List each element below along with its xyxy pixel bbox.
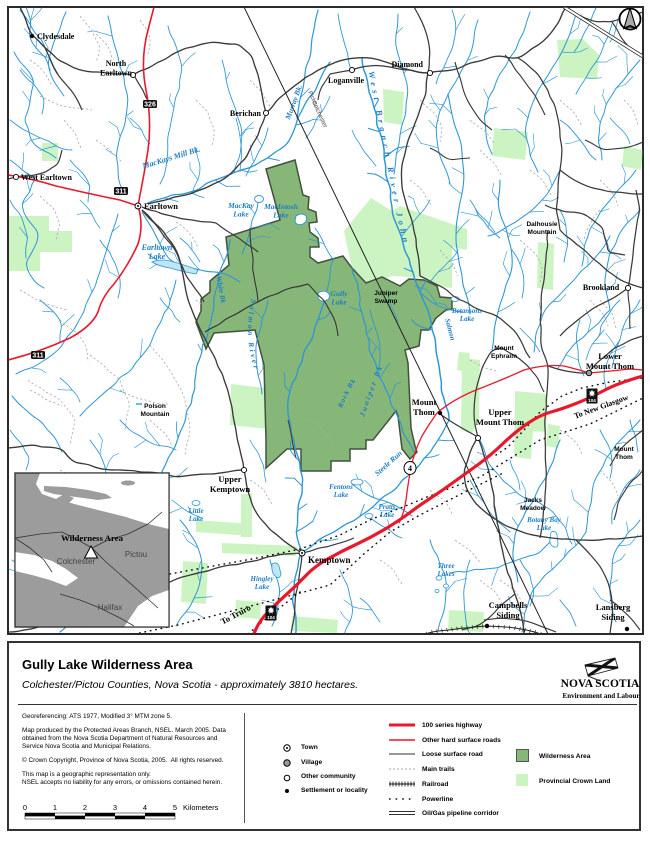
svg-text:311: 311 bbox=[32, 353, 43, 360]
svg-text:Lake: Lake bbox=[459, 315, 474, 323]
svg-text:Lower: Lower bbox=[598, 351, 622, 361]
svg-text:Mount Thom: Mount Thom bbox=[586, 361, 634, 371]
svg-text:326: 326 bbox=[144, 102, 156, 109]
svg-text:Earltown: Earltown bbox=[141, 243, 173, 252]
svg-text:Environment and Labour: Environment and Labour bbox=[563, 692, 640, 700]
svg-text:3: 3 bbox=[113, 803, 117, 812]
svg-text:Kemptown: Kemptown bbox=[308, 555, 351, 565]
svg-text:Lake: Lake bbox=[536, 524, 551, 532]
svg-text:Lansberg: Lansberg bbox=[596, 602, 631, 612]
svg-text:Kemptown: Kemptown bbox=[210, 484, 250, 494]
svg-text:Loganville: Loganville bbox=[328, 76, 364, 85]
svg-text:Mount: Mount bbox=[494, 345, 514, 352]
svg-text:Swamp: Swamp bbox=[375, 298, 398, 305]
svg-text:West Earltown: West Earltown bbox=[21, 173, 72, 182]
svg-text:Thom: Thom bbox=[413, 407, 435, 417]
svg-text:5: 5 bbox=[173, 803, 177, 812]
svg-text:North: North bbox=[106, 59, 127, 68]
svg-text:Pictou: Pictou bbox=[125, 550, 147, 559]
svg-text:Mountain: Mountain bbox=[141, 411, 170, 418]
svg-text:Lakes: Lakes bbox=[436, 570, 454, 578]
svg-text:Ephraim: Ephraim bbox=[491, 353, 517, 360]
svg-text:Earltown: Earltown bbox=[144, 201, 178, 211]
svg-text:1: 1 bbox=[53, 803, 57, 812]
svg-text:Upper: Upper bbox=[218, 474, 241, 484]
svg-text:4: 4 bbox=[408, 464, 412, 473]
svg-text:Colchester: Colchester bbox=[57, 557, 96, 566]
svg-text:Mount: Mount bbox=[412, 397, 437, 407]
svg-text:Pratts: Pratts bbox=[378, 503, 395, 511]
svg-text:Three: Three bbox=[437, 562, 454, 570]
svg-text:Little: Little bbox=[187, 507, 203, 515]
svg-text:Campbells: Campbells bbox=[489, 600, 528, 610]
svg-text:Lake: Lake bbox=[272, 211, 289, 220]
svg-text:Botany Bay: Botany Bay bbox=[526, 516, 562, 524]
svg-text:Upper: Upper bbox=[488, 407, 511, 417]
svg-text:Lake: Lake bbox=[188, 515, 203, 523]
svg-text:311: 311 bbox=[115, 189, 126, 196]
svg-text:Lake: Lake bbox=[254, 583, 269, 591]
svg-text:Berichan: Berichan bbox=[230, 109, 262, 118]
svg-text:Mountain: Mountain bbox=[528, 229, 557, 236]
svg-text:4: 4 bbox=[143, 803, 147, 812]
svg-text:Juniper: Juniper bbox=[374, 290, 398, 297]
svg-text:Siding: Siding bbox=[601, 612, 625, 622]
svg-text:104: 104 bbox=[588, 398, 596, 403]
svg-text:Hingley: Hingley bbox=[250, 575, 275, 583]
svg-text:Mount Thom: Mount Thom bbox=[476, 417, 524, 427]
svg-text:Mount: Mount bbox=[614, 446, 634, 453]
svg-text:Brookland: Brookland bbox=[583, 283, 620, 292]
svg-text:Polson: Polson bbox=[144, 403, 166, 410]
svg-text:Lake: Lake bbox=[379, 511, 394, 519]
svg-text:Jacks: Jacks bbox=[524, 497, 542, 504]
svg-text:Kilometers: Kilometers bbox=[183, 803, 219, 812]
svg-text:Thom: Thom bbox=[615, 454, 633, 461]
svg-text:Halifax: Halifax bbox=[98, 603, 122, 612]
svg-text:Lake: Lake bbox=[333, 491, 348, 499]
svg-text:Betansons: Betansons bbox=[451, 307, 482, 315]
svg-text:Lake: Lake bbox=[330, 298, 347, 307]
svg-text:Clydesdale: Clydesdale bbox=[37, 32, 75, 41]
svg-text:Siding: Siding bbox=[496, 610, 520, 620]
svg-text:104: 104 bbox=[267, 615, 275, 620]
svg-text:Dalhousie: Dalhousie bbox=[526, 221, 557, 228]
svg-text:Diamond: Diamond bbox=[391, 60, 423, 69]
svg-text:NOVA SCOTIA: NOVA SCOTIA bbox=[561, 678, 640, 690]
svg-text:Meadow: Meadow bbox=[520, 505, 547, 512]
svg-text:0: 0 bbox=[23, 803, 27, 812]
svg-text:Earltown: Earltown bbox=[100, 69, 133, 78]
svg-text:2: 2 bbox=[83, 803, 87, 812]
svg-text:Fentons: Fentons bbox=[329, 483, 353, 491]
svg-text:Lake: Lake bbox=[232, 210, 249, 219]
svg-text:Wilderness Area: Wilderness Area bbox=[61, 533, 124, 543]
svg-text:Lake: Lake bbox=[148, 252, 166, 261]
